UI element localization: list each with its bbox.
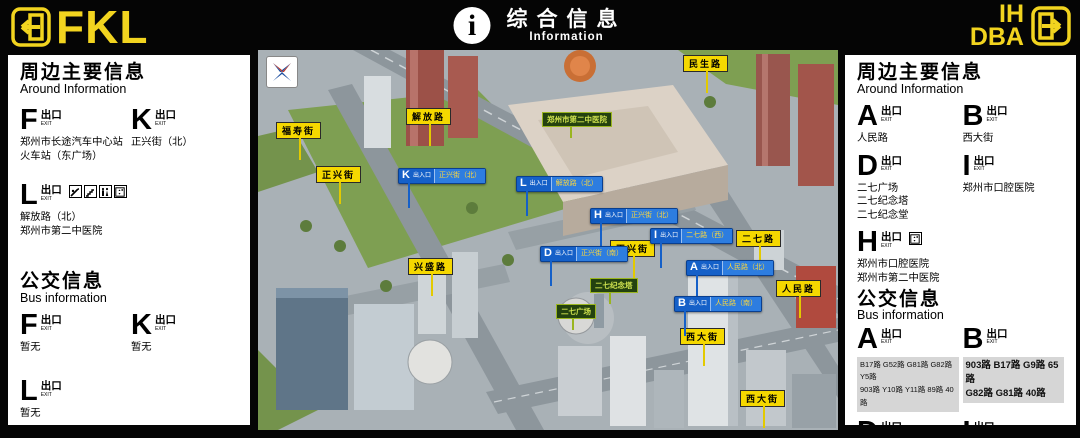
marker-street: 正兴街（北） [626,209,677,223]
bus-routes: B17路 G52路 G81路 G82路 Y5路 903路 Y10路 Y11路 8… [857,357,959,412]
road-label: 人民路 [776,280,821,297]
exit-word-label: 出口EXIT [155,315,176,332]
map-exit-marker-I: I出入口二七路（西） [650,228,733,244]
exit-head: K出口EXIT [131,108,238,134]
marker-gate-word: 出入口 [660,233,681,239]
exit-letter: I [963,154,971,179]
exit-entry-B: B出口EXIT903路 B17路 G9路 65路 G82路 G81路 40路 [963,327,1065,412]
exit-letter: I [963,420,971,425]
marker-letter: K [399,169,413,183]
bus-title: 公交信息 [857,290,1064,310]
exit-letter: K [131,313,152,338]
marker-street: 正兴街（北） [434,169,485,183]
exit-letter: B [963,104,984,129]
exit-letter: H [857,230,878,255]
info-icon: i [454,7,491,44]
exit-left-icon [10,6,52,48]
exit-right-icon [1030,5,1072,47]
map-exit-marker-A: A出入口人民路（北） [686,260,774,276]
bus-routes: 903路 B17路 G9路 65路 G82路 G81路 40路 [963,357,1065,404]
exit-letter: B [963,327,984,352]
area-map: 福寿街解放路正兴街民生路兴盛路正兴街二七路人民路西大街西大街郑州市第二中医院二七… [258,50,838,430]
exit-entry-F: F出口EXIT郑州市长途汽车中心站 火车站（东广场） [20,108,127,163]
exit-head: D出口EXIT [857,420,959,425]
around-exit-list: F出口EXIT郑州市长途汽车中心站 火车站（东广场）K出口EXIT正兴街（北）L… [20,108,238,238]
marker-street: 二七路（西） [681,229,732,243]
bus-title: 公交信息 [20,272,238,292]
around-subtitle: Around Information [857,83,1064,96]
exit-word-label: 出口EXIT [41,381,62,398]
around-title: 周边主要信息 [20,63,238,83]
exit-description: 二七广场 二七纪念塔 二七纪念堂 [857,182,959,223]
exit-entry-A: A出口EXITB17路 G52路 G81路 G82路 Y5路 903路 Y10路… [857,327,959,412]
around-exit-list: A出口EXIT人民路B出口EXIT西大街D出口EXIT二七广场 二七纪念塔 二七… [857,104,1064,285]
board-title: 综合信息 [507,8,627,31]
marker-letter: H [591,209,605,223]
map-exit-marker-K: K出入口正兴街（北） [398,168,486,184]
around-title: 周边主要信息 [857,63,1064,83]
exit-letter: D [857,154,878,179]
poi-label: 二七广场 [556,304,596,319]
exit-word-label: 出口EXIT [881,422,902,425]
exit-entry-F: F出口EXIT暂无 [20,313,127,355]
exit-description: 正兴街（北） [131,136,238,150]
stairs-icon [84,185,97,198]
marker-street: 人民路（南） [710,297,761,311]
exit-description: 郑州市口腔医院 [963,182,1065,196]
exit-description: 暂无 [20,341,127,355]
bus-exit-list: F出口EXIT暂无K出口EXIT暂无L出口EXIT暂无 [20,313,238,420]
exit-entry-D: D出口EXIT二七广场 二七纪念塔 二七纪念堂 [857,154,959,223]
marker-gate-word: 出入口 [530,181,551,187]
exit-letter: A [857,104,878,129]
header-left-exit-group: FKL [10,4,148,50]
exit-letter: F [20,313,38,338]
exit-head: A出口EXIT [857,327,959,353]
map-exit-marker-H: H出入口正兴街（北） [590,208,678,224]
exit-description: 人民路 [857,132,959,146]
exit-word-label: 出口EXIT [974,422,995,425]
board-subtitle: Information [507,31,627,43]
road-label: 福寿街 [276,122,321,139]
toilet-icon [99,185,112,198]
exit-head: B出口EXIT [963,104,1065,130]
exit-word-label: 出口EXIT [986,106,1007,123]
exit-description: 西大街 [963,132,1065,146]
bus-subtitle: Bus information [20,292,238,305]
exit-entry-I: I出口EXIT21路、34路、B51路、903路、6路、Y6路 [963,420,1065,425]
exit-word-label: 出口EXIT [155,110,176,127]
bus-exit-list: A出口EXITB17路 G52路 G81路 G82路 Y5路 903路 Y10路… [857,327,1064,425]
marker-pole [526,190,528,216]
road-label: 正兴街 [316,166,361,183]
exit-entry-K: K出口EXIT正兴街（北） [131,108,238,163]
exit-letter: K [131,108,152,133]
station-information-board: FKL i 综合信息 Information IH DBA 周边主要信息Arou… [0,0,1080,438]
around-subtitle: Around Information [20,83,238,96]
exit-entry-D: D出口EXIT [857,420,959,425]
exit-head: F出口EXIT [20,108,127,134]
exit-word-label: 出口EXIT [881,329,902,346]
header-exit-codes-left: FKL [56,4,148,50]
exit-entry-A: A出口EXIT人民路 [857,104,959,146]
exit-word-label: 出口EXIT [41,185,62,202]
right-info-panel: 周边主要信息Around InformationA出口EXIT人民路B出口EXI… [845,55,1076,425]
marker-pole [684,310,686,336]
exit-letter: L [20,379,38,404]
left-info-panel: 周边主要信息Around InformationF出口EXIT郑州市长途汽车中心… [8,55,250,425]
marker-pole [550,260,552,286]
exit-description: 暂无 [131,341,238,355]
road-label: 二七路 [736,230,781,247]
exit-head: F出口EXIT [20,313,127,339]
exit-word-label: 出口EXIT [41,110,62,127]
header-exit-codes-right-2: DBA [970,26,1024,49]
exit-head: D出口EXIT [857,154,959,180]
exit-description: 暂无 [20,407,127,421]
exit-letter: D [857,420,878,425]
road-label: 兴盛路 [408,258,453,275]
exit-description: 郑州市口腔医院 郑州市第二中医院 [857,258,959,285]
marker-letter: A [687,261,701,275]
exit-word-label: 出口EXIT [881,232,902,249]
map-exit-marker-D: D出入口正兴街（南） [540,246,628,262]
marker-gate-word: 出入口 [555,251,576,257]
marker-gate-word: 出入口 [701,265,722,271]
exit-letter: F [20,108,38,133]
bus-subtitle: Bus information [857,309,1064,322]
exit-entry-L: L出口EXIT暂无 [20,379,127,421]
exit-head: K出口EXIT [131,313,238,339]
marker-letter: L [517,177,530,191]
exit-word-label: 出口EXIT [881,156,902,173]
marker-street: 解放路（北） [551,177,602,191]
exit-head: I出口EXIT [963,420,1065,425]
compass-icon [266,56,298,88]
facility-icons [69,185,127,198]
exit-entry-K: K出口EXIT暂无 [131,313,238,355]
marker-gate-word: 出入口 [605,213,626,219]
header-center: i 综合信息 Information [454,7,627,44]
exit-word-label: 出口EXIT [974,156,995,173]
exit-letter: A [857,327,878,352]
marker-pole [600,222,602,248]
exit-head: L出口EXIT [20,183,127,209]
exit-head: B出口EXIT [963,327,1065,353]
exit-word-label: 出口EXIT [986,329,1007,346]
exit-word-label: 出口EXIT [881,106,902,123]
escalator-icon [69,185,82,198]
marker-street: 人民路（北） [722,261,773,275]
exit-head: A出口EXIT [857,104,959,130]
exit-head: L出口EXIT [20,379,127,405]
road-label: 民生路 [683,55,728,72]
elevator-icon [909,232,922,245]
exit-head: H出口EXIT [857,230,959,256]
marker-pole [660,242,662,268]
poi-label: 郑州市第二中医院 [542,112,612,127]
exit-description: 郑州市长途汽车中心站 火车站（东广场） [20,136,127,163]
facility-icons [909,232,922,245]
exit-entry-B: B出口EXIT西大街 [963,104,1065,146]
elevator-icon [114,185,127,198]
marker-pole [408,182,410,208]
exit-description: 解放路（北） 郑州市第二中医院 [20,211,127,238]
map-exit-marker-B: B出入口人民路（南） [674,296,762,312]
exit-head: I出口EXIT [963,154,1065,180]
header-right-exit-group: IH DBA [970,3,1072,49]
marker-gate-word: 出入口 [413,173,434,179]
road-label: 西大街 [740,390,785,407]
exit-entry-L: L出口EXIT解放路（北） 郑州市第二中医院 [20,183,127,238]
map-exit-marker-L: L出入口解放路（北） [516,176,603,192]
marker-street: 正兴街（南） [576,247,627,261]
poi-label: 二七纪念塔 [590,278,638,293]
marker-gate-word: 出入口 [689,301,710,307]
marker-letter: B [675,297,689,311]
exit-entry-H: H出口EXIT郑州市口腔医院 郑州市第二中医院 [857,230,959,285]
exit-entry-I: I出口EXIT郑州市口腔医院 [963,154,1065,223]
marker-letter: D [541,247,555,261]
exit-word-label: 出口EXIT [41,315,62,332]
exit-letter: L [20,183,38,208]
road-label: 解放路 [406,108,451,125]
road-label: 西大街 [680,328,725,345]
marker-letter: I [651,229,660,243]
